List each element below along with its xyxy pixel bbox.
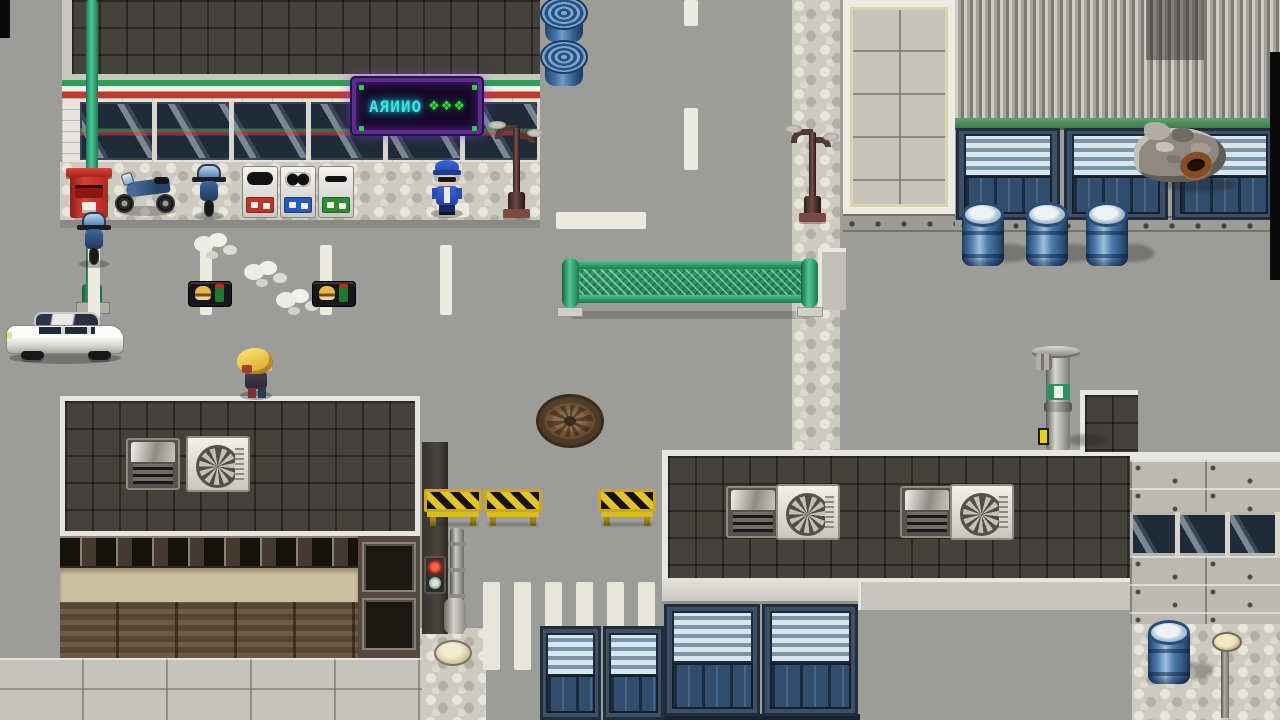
stack-collar <box>1044 402 1072 412</box>
plank-band <box>60 602 358 658</box>
fence-rail <box>571 261 809 269</box>
sunglasses <box>438 177 456 182</box>
street-lamp <box>488 120 544 220</box>
white-sedan[interactable] <box>6 312 124 362</box>
lamp-pole <box>513 128 520 198</box>
tile-facade <box>850 7 948 207</box>
window <box>362 598 416 650</box>
neon-sign-text: ONNRA <box>368 97 421 116</box>
lamp-foot <box>799 213 826 222</box>
lamp-head <box>784 125 802 133</box>
headlight <box>7 332 12 339</box>
corrugated-warehouse <box>955 0 1280 120</box>
lane-dash <box>440 245 452 315</box>
fence-post <box>801 258 818 308</box>
bin-label <box>246 197 274 213</box>
front-wheel <box>204 199 214 217</box>
rooftop-vent-unit <box>126 438 180 490</box>
tiled-office-building <box>843 0 955 214</box>
mailbox-slot <box>75 185 103 198</box>
ground-lamp <box>434 640 472 666</box>
legs <box>439 205 455 215</box>
blue-drum[interactable] <box>1086 210 1128 266</box>
motorcycle-body <box>200 181 218 201</box>
warehouse-shadow-block <box>1146 0 1204 60</box>
recycle-bin-bottles[interactable] <box>318 166 354 218</box>
npc-police-officer[interactable] <box>428 160 466 218</box>
lamp-pole <box>809 132 816 202</box>
front-wheel <box>89 247 99 265</box>
lamp-head <box>488 121 506 129</box>
hazard-barricade[interactable] <box>484 486 542 528</box>
concrete-panels-lower <box>1130 556 1280 624</box>
blue-drum[interactable] <box>1148 628 1190 684</box>
lamp-foot <box>503 209 530 218</box>
bottom-left-wall <box>0 658 422 720</box>
stack-yellow-tag <box>1038 428 1049 445</box>
fence-shadow <box>570 311 810 319</box>
cap-brim <box>433 170 461 175</box>
store-neon-sign: ONNRA ❖❖❖ <box>352 78 482 134</box>
fence-rail <box>571 295 809 303</box>
vent-smokestack <box>1032 344 1084 454</box>
construction-fence <box>562 258 818 310</box>
street-lamp <box>784 124 840 224</box>
ac-condenser <box>950 484 1014 540</box>
recycle-bin-burnable[interactable] <box>242 166 278 218</box>
ac-condenser <box>776 484 840 540</box>
storefront-shadow <box>60 220 540 228</box>
car-side-windows <box>39 327 95 334</box>
ac-condenser <box>186 436 250 492</box>
lamp-head <box>527 129 543 137</box>
blue-hose-coil[interactable] <box>540 40 588 86</box>
shutter-container <box>664 604 760 716</box>
fence-post <box>562 258 579 308</box>
motorcycle-front-view[interactable] <box>191 164 227 220</box>
fence-footing <box>557 307 583 317</box>
window <box>362 542 416 592</box>
factory-fascia <box>662 578 860 604</box>
red-scarf <box>242 365 252 373</box>
bin-label <box>284 197 312 213</box>
blue-drum[interactable] <box>1026 210 1068 266</box>
store-roof <box>62 0 540 80</box>
center-line-dash <box>684 0 698 26</box>
food-tray[interactable] <box>312 281 356 307</box>
lamp-head <box>823 133 839 141</box>
shadow <box>240 391 272 400</box>
concrete-panels-upper <box>1130 460 1280 512</box>
wall-stub <box>818 248 846 310</box>
center-line-dash <box>684 108 698 170</box>
leg <box>258 388 266 398</box>
front-wheel <box>21 351 44 362</box>
screen-edge <box>0 0 10 38</box>
blue-hose-coil[interactable] <box>540 0 588 42</box>
clerestory-window-strip <box>60 536 358 568</box>
fence-footing <box>797 307 823 317</box>
game-viewport[interactable]: ONNRA ❖❖❖ <box>0 0 1280 720</box>
motorcycle-body <box>85 229 103 249</box>
factory-wall-band <box>858 578 1136 610</box>
screen-edge <box>1270 52 1280 280</box>
concrete-building-edge <box>1130 452 1280 460</box>
bin-label <box>322 197 350 213</box>
mailbox-roof <box>66 168 112 177</box>
crosswalk-stripe <box>514 582 531 670</box>
seat <box>154 177 169 184</box>
player-character[interactable] <box>234 348 278 400</box>
recycle-bin-cans[interactable] <box>280 166 316 218</box>
jacket-torso <box>245 372 267 389</box>
junk-pile[interactable] <box>1130 120 1236 186</box>
building-base <box>843 214 955 232</box>
leg <box>248 388 256 398</box>
dust-puff <box>194 232 240 262</box>
right-cobble-strip <box>792 0 840 452</box>
neon-sign-symbols: ❖❖❖ <box>428 99 466 114</box>
pipe-muffler <box>444 598 466 634</box>
hazard-barricade[interactable] <box>598 486 656 528</box>
blue-drum[interactable] <box>962 210 1004 266</box>
stack-label <box>1054 386 1063 398</box>
front-wheel <box>115 194 134 213</box>
pedestrian-signal <box>424 556 446 594</box>
stack-side-pipes <box>1036 354 1052 370</box>
hazard-barricade[interactable] <box>424 486 482 528</box>
street-bollard-lamp <box>1210 632 1240 720</box>
wall-band <box>60 568 358 602</box>
rooftop-vent-unit <box>900 486 954 538</box>
rooftop-vent-unit <box>726 486 780 538</box>
parked-motorcycle[interactable] <box>114 170 178 216</box>
shutter-container <box>762 604 858 716</box>
food-tray[interactable] <box>188 281 232 307</box>
manhole-cover[interactable] <box>536 394 604 448</box>
dark-wall-column <box>358 536 420 658</box>
arms <box>432 188 462 199</box>
riding-motorcycle[interactable] <box>76 212 112 268</box>
stop-line <box>556 212 646 229</box>
dust-puff <box>244 260 290 290</box>
crosswalk-stripe <box>483 582 500 670</box>
shutter-container <box>540 626 601 720</box>
rear-wheel <box>88 351 111 362</box>
concrete-building-windows <box>1130 512 1280 556</box>
shutter-container <box>603 626 664 720</box>
rear-wheel <box>156 194 175 213</box>
